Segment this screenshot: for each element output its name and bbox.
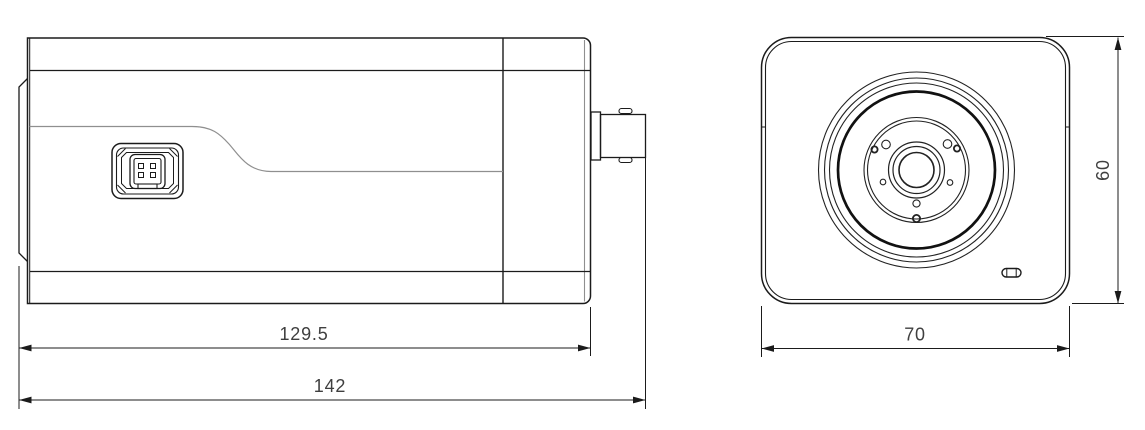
dimension-front-width: 70 [762, 325, 1070, 352]
side-view-dimensions: 129.5 142 [19, 158, 646, 409]
dimension-value-body-length: 129.5 [279, 324, 328, 344]
dimension-body-length: 129.5 [19, 324, 591, 351]
connector-pin [151, 164, 156, 169]
hood-ring-mid [825, 78, 1009, 262]
gasket-ring-dark [838, 92, 995, 249]
hood-ring-outer [819, 72, 1015, 268]
arrowhead-left [19, 397, 32, 404]
led-slot [1002, 269, 1021, 278]
connector-key-tab [138, 184, 157, 189]
front-view [762, 38, 1070, 304]
bnc-barrel [601, 115, 646, 158]
arrowhead-bottom [1115, 291, 1122, 304]
lens-ring-mid [893, 147, 940, 194]
front-body-inner-line [766, 42, 1066, 300]
connector-socket-inner [134, 159, 161, 185]
connector-pin [151, 173, 156, 178]
lens-ring-outer [889, 142, 945, 198]
dimension-value-front-height: 60 [1093, 159, 1113, 181]
mount-hole [913, 200, 920, 207]
dimension-total-length: 142 [19, 376, 646, 403]
screw-hole [954, 145, 960, 151]
mount-hole [882, 140, 891, 149]
mount-hole [943, 140, 952, 149]
side-moulding-contour [30, 127, 503, 172]
mount-hole [947, 180, 953, 186]
front-body-outline [762, 38, 1070, 304]
bnc-flange [591, 112, 601, 160]
dimension-value-front-width: 70 [904, 325, 926, 345]
lens-aperture [899, 153, 934, 188]
bnc-bayonet-pin [619, 158, 632, 163]
mount-plate-inner [868, 121, 966, 219]
bnc-bayonet-pin [619, 109, 632, 114]
bnc-connector [591, 109, 646, 163]
lens-mount-assembly [819, 72, 1015, 268]
dimension-value-total-length: 142 [314, 376, 346, 396]
connector-pin [139, 173, 144, 178]
technical-drawing: 129.5 142 [0, 0, 1145, 430]
power-connector [112, 144, 183, 199]
arrowhead-right [633, 397, 646, 404]
drawing-canvas: 129.5 142 [0, 0, 1145, 430]
dimension-front-height: 60 [1093, 38, 1121, 304]
arrowhead-left [762, 345, 775, 352]
hood-ring-inner [830, 83, 1004, 257]
connector-octagon-face [122, 153, 174, 189]
led-indicator [1002, 269, 1021, 278]
connector-pin [139, 164, 144, 169]
arrowhead-right [1057, 345, 1070, 352]
mount-hole [880, 179, 886, 185]
arrowhead-top [1115, 38, 1122, 51]
front-bezel [19, 79, 28, 262]
arrowhead-left [19, 345, 32, 352]
arrowhead-right [578, 345, 591, 352]
side-view [19, 38, 646, 304]
